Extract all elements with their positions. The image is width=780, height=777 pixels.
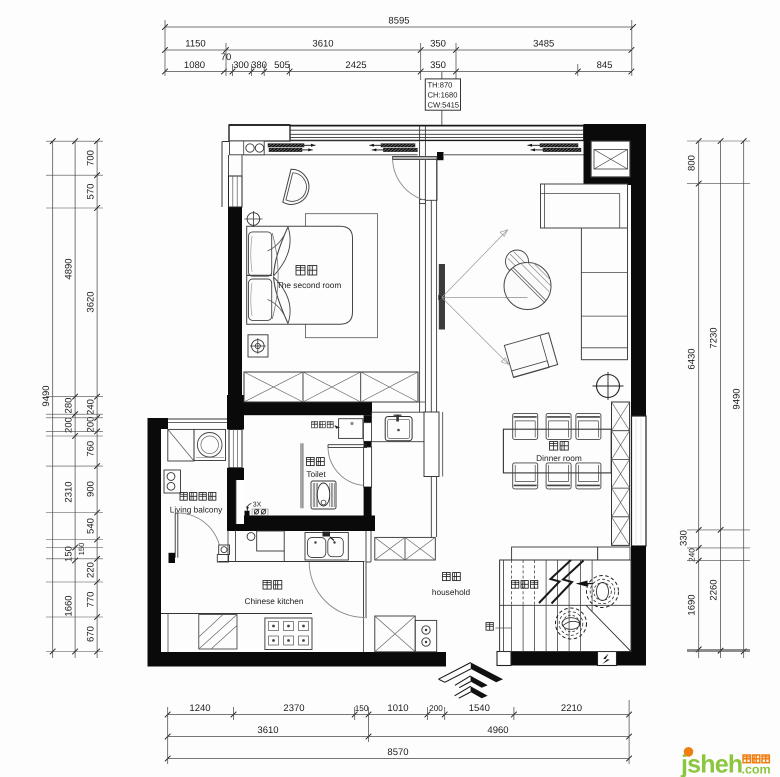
svg-text:240: 240 <box>688 548 697 562</box>
svg-text:200: 200 <box>64 417 75 433</box>
svg-text:7230: 7230 <box>709 327 720 348</box>
svg-text:8570: 8570 <box>387 747 408 758</box>
svg-text:150: 150 <box>355 704 369 713</box>
svg-text:4960: 4960 <box>487 725 508 736</box>
svg-text:505: 505 <box>274 60 290 71</box>
svg-text:1540: 1540 <box>469 703 490 714</box>
svg-text:2310: 2310 <box>64 481 75 502</box>
svg-text:1010: 1010 <box>387 703 408 714</box>
svg-text:800: 800 <box>687 155 698 171</box>
svg-text:1240: 1240 <box>189 703 210 714</box>
svg-text:Toilet: Toilet <box>306 469 326 479</box>
svg-text:330: 330 <box>679 530 690 546</box>
svg-text:CH:1680: CH:1680 <box>428 91 458 100</box>
svg-text:1150: 1150 <box>185 39 205 50</box>
svg-text:Living balcony: Living balcony <box>170 505 223 515</box>
svg-text:The second room: The second room <box>277 280 342 290</box>
svg-text:3X: 3X <box>253 502 262 509</box>
svg-text:2425: 2425 <box>345 60 366 71</box>
svg-text:845: 845 <box>597 60 613 71</box>
svg-text:6430: 6430 <box>687 348 698 369</box>
svg-text:4890: 4890 <box>64 258 75 279</box>
svg-text:570: 570 <box>86 184 97 200</box>
svg-text:2370: 2370 <box>283 703 304 714</box>
svg-text:770: 770 <box>86 592 97 608</box>
svg-text:350: 350 <box>430 60 446 71</box>
svg-text:280: 280 <box>64 398 75 414</box>
svg-text:household: household <box>432 587 471 597</box>
svg-text:3610: 3610 <box>312 39 333 50</box>
svg-text:8595: 8595 <box>388 16 409 27</box>
svg-text:220: 220 <box>86 562 97 578</box>
svg-text:TH:870: TH:870 <box>428 81 453 90</box>
svg-text:150: 150 <box>64 546 75 562</box>
svg-text:.com: .com <box>742 763 771 777</box>
svg-text:Dinner room: Dinner room <box>536 453 582 463</box>
svg-text:240: 240 <box>86 399 97 415</box>
svg-text:760: 760 <box>86 441 97 457</box>
svg-text:200: 200 <box>86 417 97 433</box>
svg-text:540: 540 <box>86 518 97 534</box>
svg-text:9490: 9490 <box>732 388 743 409</box>
svg-text:Chinese kitchen: Chinese kitchen <box>244 596 303 606</box>
svg-text:1080: 1080 <box>184 60 205 71</box>
svg-text:350: 350 <box>430 39 446 50</box>
svg-text:3610: 3610 <box>257 725 278 736</box>
svg-text:3485: 3485 <box>533 39 554 50</box>
svg-text:1660: 1660 <box>64 595 75 616</box>
svg-text:900: 900 <box>86 481 97 497</box>
svg-text:700: 700 <box>86 150 97 166</box>
svg-text:CW:5415: CW:5415 <box>428 101 460 110</box>
svg-text:200: 200 <box>429 704 443 713</box>
svg-text:9490: 9490 <box>41 385 52 406</box>
svg-text:1690: 1690 <box>687 594 698 615</box>
svg-text:3620: 3620 <box>86 291 97 312</box>
svg-text:300: 300 <box>233 60 249 71</box>
svg-text:670: 670 <box>86 626 97 642</box>
svg-text:150: 150 <box>77 543 86 556</box>
svg-text:2210: 2210 <box>561 703 582 714</box>
svg-text:2260: 2260 <box>709 579 720 600</box>
